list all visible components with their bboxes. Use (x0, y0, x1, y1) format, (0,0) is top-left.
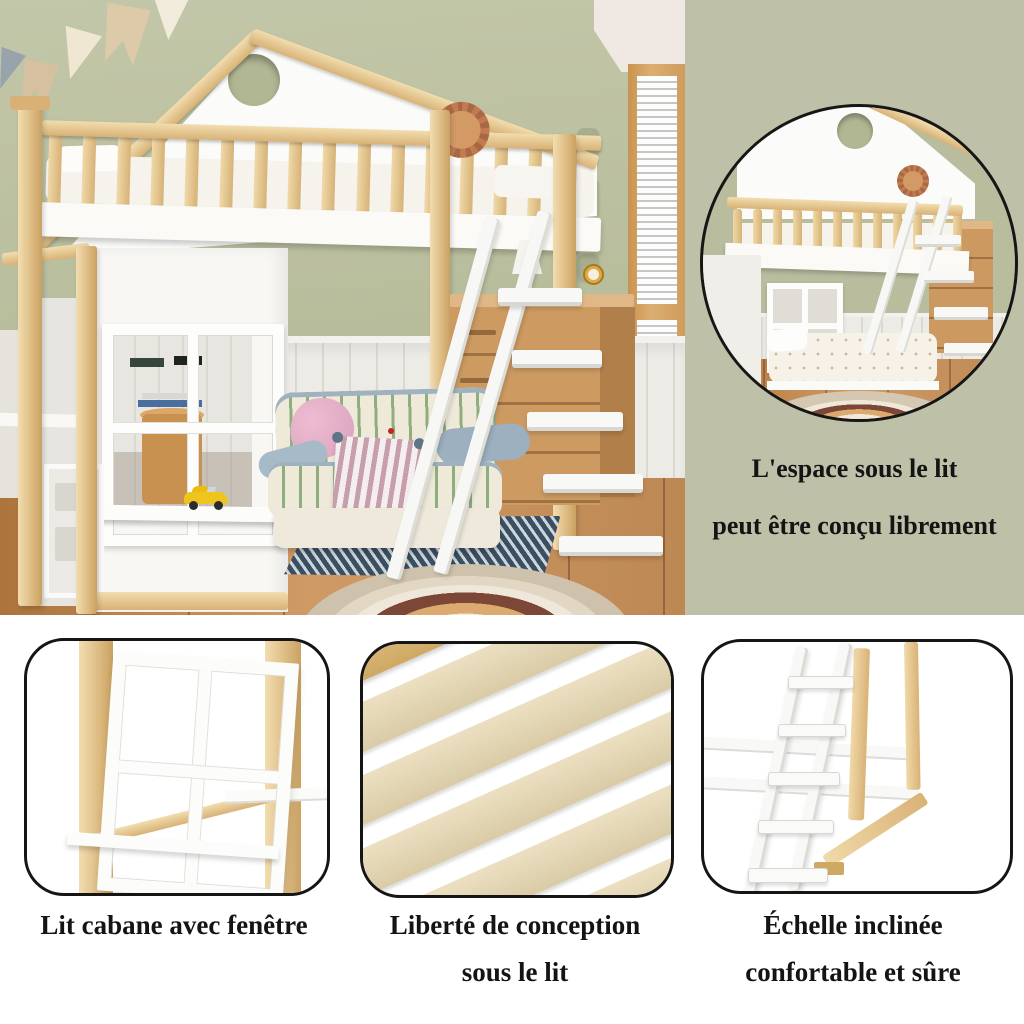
toy-car-wheel (189, 501, 198, 510)
door-blind-top (637, 76, 677, 304)
inset-guardrail-spindle (853, 209, 862, 251)
bunting-flag (97, 3, 150, 68)
inset-guardrail-spindle (813, 209, 822, 251)
ladder-rung (768, 772, 840, 786)
feature-card-slats (360, 641, 674, 898)
dresser-side (600, 307, 635, 497)
sofa-base (274, 508, 500, 548)
card-window-frame (97, 651, 299, 896)
caption-ladder: Échelle inclinée confortable et sûre (682, 902, 1024, 996)
bed-post-cap (10, 96, 50, 110)
caption-line: Liberté de conception (348, 902, 682, 949)
bunting-flag (0, 47, 26, 93)
guardrail-spindle (82, 133, 97, 207)
guardrail-spindle (287, 139, 302, 213)
caption-line: Échelle inclinée (682, 902, 1024, 949)
guardrail-spindle (47, 132, 62, 206)
bed-post (18, 104, 42, 606)
caption-window: Lit cabane avec fenêtre (0, 902, 348, 949)
ladder-rung (559, 536, 663, 556)
window-mullion-horizontal (113, 423, 273, 433)
inset-pillow (766, 328, 807, 353)
caption-slats: Liberté de conception sous le lit (348, 902, 682, 996)
under-bed-circle-inset (700, 104, 1018, 422)
guardrail-spindle (116, 134, 131, 208)
alarm-clock (583, 264, 604, 285)
feature-card-ladder (701, 639, 1013, 894)
main-photo-lit-cabane (0, 0, 685, 615)
toy-car (184, 486, 228, 508)
heading-line-2: peut être conçu librement (685, 497, 1024, 554)
ceiling-corner (594, 0, 685, 72)
bunting-flag (52, 26, 102, 85)
caption-line: Lit cabane avec fenêtre (0, 902, 348, 949)
inset-guardrail-spindle (873, 209, 882, 251)
inset-base-rail (767, 381, 939, 390)
guardrail-spindle (184, 136, 199, 210)
inset-ladder-rung (924, 271, 974, 283)
inset-round-window (837, 113, 873, 149)
slat-set (360, 641, 674, 898)
caption-line: confortable et sûre (682, 949, 1024, 996)
inset-ladder-rung (915, 235, 961, 247)
under-bed-heading: L'espace sous le lit peut être conçu lib… (685, 440, 1024, 554)
guardrail-spindle (322, 140, 337, 214)
card-wood-post (904, 642, 921, 790)
house-base-rail (78, 592, 288, 610)
card-wood-base (822, 792, 929, 868)
guardrail-spindle (219, 137, 234, 211)
ladder-rung (778, 724, 846, 737)
ladder-rung (543, 474, 643, 493)
bed-post (76, 246, 97, 614)
inset-guardrail-spindle (833, 209, 842, 251)
ladder-rung (498, 288, 582, 306)
bunting-flag (148, 0, 191, 41)
inset-ladder-rung (944, 343, 1002, 356)
sofa-button (388, 428, 394, 434)
ladder-rung (788, 676, 854, 689)
guardrail-spindle (356, 141, 371, 215)
toy-car-wheel (214, 501, 223, 510)
pompom (332, 432, 344, 444)
guardrail-spindle (390, 142, 405, 216)
ladder-rung (512, 350, 602, 368)
feature-card-window (24, 638, 330, 896)
card-white-rail (704, 737, 909, 761)
inset-sun-plush (897, 165, 929, 197)
guardrail-spindle (253, 138, 268, 212)
ladder-rung (527, 412, 623, 431)
caption-line: sous le lit (348, 949, 682, 996)
inset-side-panel (703, 255, 761, 389)
heading-line-1: L'espace sous le lit (685, 440, 1024, 497)
slats-group (360, 641, 674, 898)
ladder-rung (758, 820, 834, 834)
ladder-rung (748, 868, 828, 883)
guardrail-spindle (150, 135, 165, 209)
product-collage: L'espace sous le lit peut être conçu lib… (0, 0, 1024, 1024)
inset-ladder-rung (934, 307, 988, 320)
